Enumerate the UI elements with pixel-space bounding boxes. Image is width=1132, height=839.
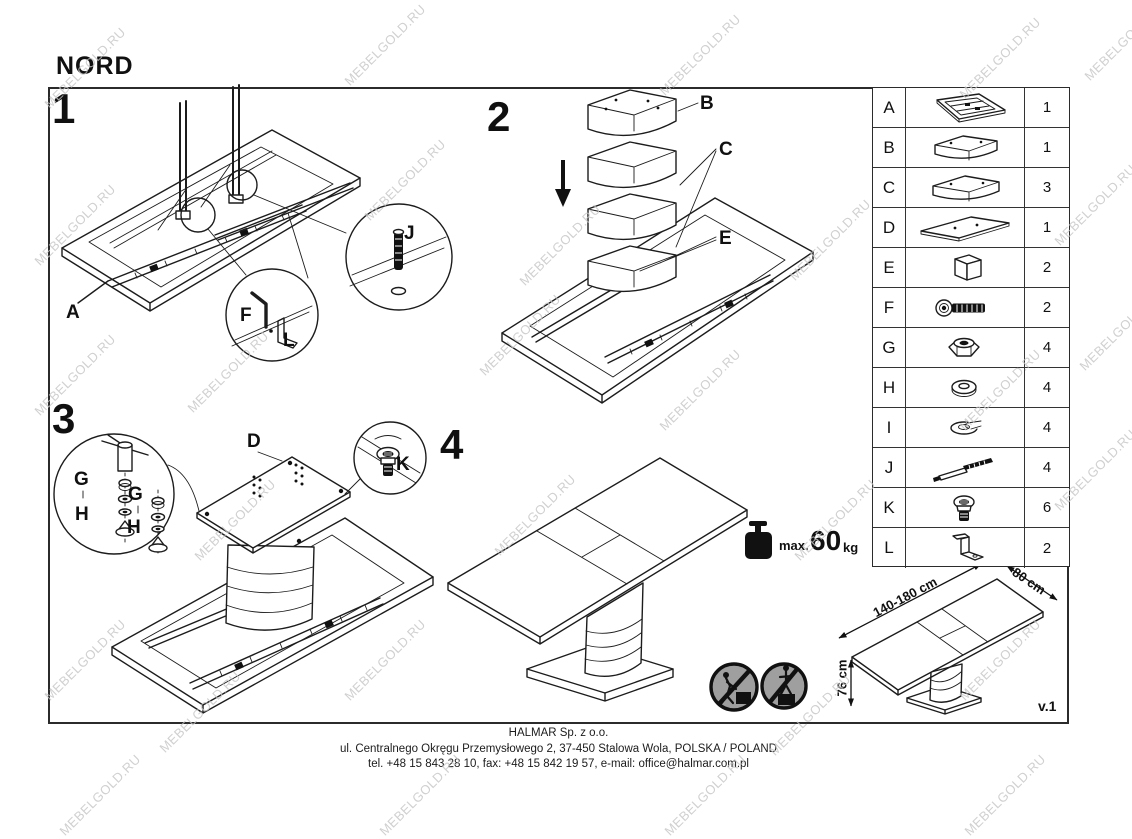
flat-washer-icon bbox=[907, 370, 1023, 406]
part-letter: H bbox=[873, 368, 906, 407]
table-row: L 2 bbox=[873, 528, 1069, 568]
part-qty: 6 bbox=[1025, 488, 1069, 527]
part-qty: 1 bbox=[1025, 208, 1069, 247]
max-weight-unit: kg bbox=[843, 540, 858, 555]
label-part-d: D bbox=[247, 432, 261, 451]
step-1-number: 1 bbox=[52, 88, 75, 130]
part-letter: I bbox=[873, 408, 906, 447]
part-qty: 3 bbox=[1025, 168, 1069, 207]
table-row: B 1 bbox=[873, 128, 1069, 168]
step-2-number: 2 bbox=[487, 96, 510, 138]
no-standing-icon bbox=[762, 664, 806, 708]
version-label: v.1 bbox=[1038, 698, 1056, 714]
part-qty: 4 bbox=[1025, 368, 1069, 407]
part-letter: C bbox=[873, 168, 906, 207]
l-bracket-icon bbox=[907, 530, 1023, 566]
step-4-number: 4 bbox=[440, 424, 463, 466]
threaded-rod-icon bbox=[907, 450, 1023, 486]
watermark-text: MEBELGOLD.RU bbox=[341, 1, 428, 88]
table-row: I 4 bbox=[873, 408, 1069, 448]
label-part-k: K bbox=[396, 455, 410, 474]
tabletop-frame-icon bbox=[907, 90, 1023, 126]
step-3-number: 3 bbox=[52, 398, 75, 440]
step-1-drawing bbox=[50, 85, 480, 407]
part-qty: 2 bbox=[1025, 528, 1069, 568]
pedestal-segment-icon bbox=[907, 170, 1023, 206]
step-2-drawing bbox=[470, 85, 870, 415]
table-row: F 2 bbox=[873, 288, 1069, 328]
part-qty: 1 bbox=[1025, 128, 1069, 167]
label-part-g: G bbox=[74, 470, 89, 489]
parts-table: A 1 B 1 C bbox=[872, 87, 1070, 567]
footer-address: ul. Centralnego Okręgu Przemysłowego 2, … bbox=[48, 742, 1069, 758]
table-row: H 4 bbox=[873, 368, 1069, 408]
step-4-drawing bbox=[435, 425, 865, 725]
footer: HALMAR Sp. z o.o. ul. Centralnego Okręgu… bbox=[48, 726, 1069, 773]
part-qty: 4 bbox=[1025, 408, 1069, 447]
table-row: G 4 bbox=[873, 328, 1069, 368]
page-title: NORD bbox=[56, 52, 134, 81]
watermark-text: MEBELGOLD.RU bbox=[1081, 0, 1132, 84]
part-letter: J bbox=[873, 448, 906, 487]
table-row: A 1 bbox=[873, 88, 1069, 128]
base-plate-icon bbox=[907, 210, 1023, 246]
label-part-f: F bbox=[240, 306, 252, 325]
dome-screw-icon bbox=[907, 490, 1023, 526]
pedestal-segment-icon bbox=[907, 130, 1023, 166]
part-qty: 2 bbox=[1025, 288, 1069, 327]
part-letter: F bbox=[873, 288, 906, 327]
no-climbing-icon bbox=[711, 664, 757, 710]
watermark-text: MEBELGOLD.RU bbox=[1076, 286, 1132, 373]
label-part-e: E bbox=[719, 229, 732, 248]
part-letter: B bbox=[873, 128, 906, 167]
footer-company: HALMAR Sp. z o.o. bbox=[48, 726, 1069, 742]
part-qty: 1 bbox=[1025, 88, 1069, 127]
label-part-h: H bbox=[75, 505, 89, 524]
table-row: C 3 bbox=[873, 168, 1069, 208]
table-row: K 6 bbox=[873, 488, 1069, 528]
label-part-g: G bbox=[128, 485, 143, 504]
max-weight-prefix: max. bbox=[779, 538, 809, 553]
spacer-block-icon bbox=[907, 250, 1023, 286]
part-letter: L bbox=[873, 528, 906, 568]
part-letter: E bbox=[873, 248, 906, 287]
part-letter: A bbox=[873, 88, 906, 127]
max-weight-icon bbox=[745, 521, 772, 559]
label-part-a: A bbox=[66, 303, 80, 322]
label-part-c: C bbox=[719, 140, 733, 159]
footer-contact: tel. +48 15 843 28 10, fax: +48 15 842 1… bbox=[48, 757, 1069, 773]
socket-bolt-icon bbox=[907, 290, 1023, 326]
height-dimension: 76 cm bbox=[835, 660, 850, 697]
part-letter: G bbox=[873, 328, 906, 367]
table-row: J 4 bbox=[873, 448, 1069, 488]
part-letter: D bbox=[873, 208, 906, 247]
lock-nut-icon bbox=[907, 330, 1023, 366]
part-qty: 4 bbox=[1025, 328, 1069, 367]
label-part-h: H bbox=[127, 518, 141, 537]
spring-washer-icon bbox=[907, 410, 1023, 446]
max-weight-value: 60 bbox=[810, 527, 841, 555]
label-part-b: B bbox=[700, 94, 714, 113]
label-part-j: J bbox=[404, 224, 415, 243]
table-row: D 1 bbox=[873, 208, 1069, 248]
table-row: E 2 bbox=[873, 248, 1069, 288]
label-part-l: L bbox=[283, 331, 295, 350]
part-qty: 4 bbox=[1025, 448, 1069, 487]
part-letter: K bbox=[873, 488, 906, 527]
instruction-sheet: { "title": "NORD", "watermark": { "text"… bbox=[0, 0, 1132, 800]
part-qty: 2 bbox=[1025, 248, 1069, 287]
